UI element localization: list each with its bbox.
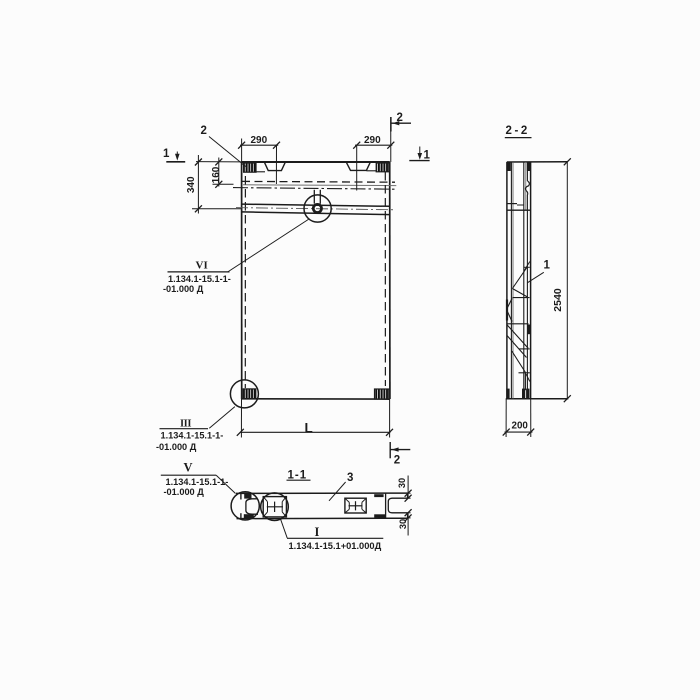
svg-text:2: 2 bbox=[397, 112, 403, 124]
svg-text:VI: VI bbox=[196, 260, 208, 272]
svg-text:1: 1 bbox=[424, 150, 431, 162]
svg-text:1.134.1-15.1-1-: 1.134.1-15.1-1- bbox=[161, 431, 224, 441]
svg-text:1: 1 bbox=[544, 260, 551, 272]
svg-text:340: 340 bbox=[186, 176, 197, 193]
svg-text:L: L bbox=[305, 421, 313, 436]
svg-text:290: 290 bbox=[364, 135, 381, 146]
svg-text:1.134.1-15.1-1-: 1.134.1-15.1-1- bbox=[168, 274, 231, 284]
svg-text:30: 30 bbox=[398, 519, 408, 529]
svg-text:2: 2 bbox=[201, 125, 207, 137]
svg-text:3: 3 bbox=[347, 472, 353, 484]
svg-text:200: 200 bbox=[512, 421, 529, 432]
svg-text:2-2: 2-2 bbox=[506, 125, 530, 137]
svg-text:290: 290 bbox=[251, 135, 268, 146]
svg-text:1.134.1-15.1+01.000Д: 1.134.1-15.1+01.000Д bbox=[289, 541, 382, 551]
svg-text:III: III bbox=[180, 418, 191, 429]
svg-text:-01.000 Д: -01.000 Д bbox=[164, 487, 205, 497]
svg-text:1: 1 bbox=[163, 148, 170, 160]
svg-text:I: I bbox=[315, 525, 320, 539]
svg-text:-01.000 Д: -01.000 Д bbox=[156, 442, 197, 452]
svg-text:-01.000 Д: -01.000 Д bbox=[163, 284, 204, 294]
svg-text:V: V bbox=[184, 461, 193, 475]
svg-text:2: 2 bbox=[394, 455, 400, 467]
svg-text:160: 160 bbox=[211, 166, 222, 183]
svg-text:30: 30 bbox=[397, 478, 407, 488]
svg-text:2540: 2540 bbox=[552, 288, 564, 312]
